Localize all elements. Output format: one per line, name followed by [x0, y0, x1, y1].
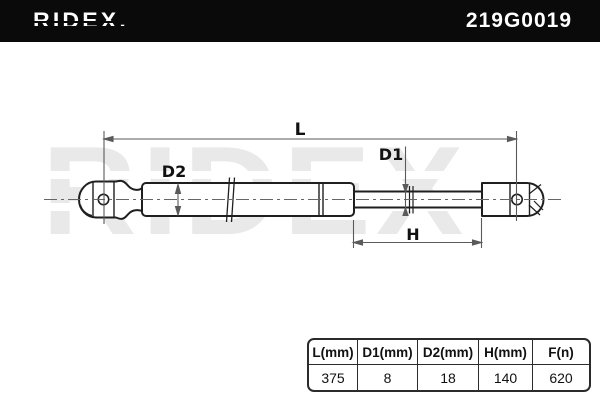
part-number: 219G0019 [466, 9, 572, 33]
spec-col-header-L: L(mm) [309, 340, 357, 365]
spec-table: L(mm) D1(mm) D2(mm) H(mm) F(n) 375 8 18 … [307, 338, 591, 392]
spec-value-H: 140 [478, 365, 532, 390]
dimension-rod-length: H [354, 218, 482, 248]
spec-value-D2: 18 [417, 365, 478, 390]
spec-col-header-D1: D1(mm) [357, 340, 417, 365]
spec-value-F: 620 [532, 365, 589, 390]
spec-col-header-H: H(mm) [478, 340, 532, 365]
label-D2: D2 [162, 162, 186, 181]
spec-value-L: 375 [309, 365, 357, 390]
label-L: L [295, 120, 306, 140]
logo-slice [30, 26, 152, 28]
label-H: H [406, 225, 419, 244]
label-D1: D1 [379, 145, 403, 164]
spec-col-header-D2: D2(mm) [417, 340, 478, 365]
spec-value-D1: 8 [357, 365, 417, 390]
spec-col-header-F: F(n) [532, 340, 589, 365]
logo-slice [30, 21, 152, 23]
